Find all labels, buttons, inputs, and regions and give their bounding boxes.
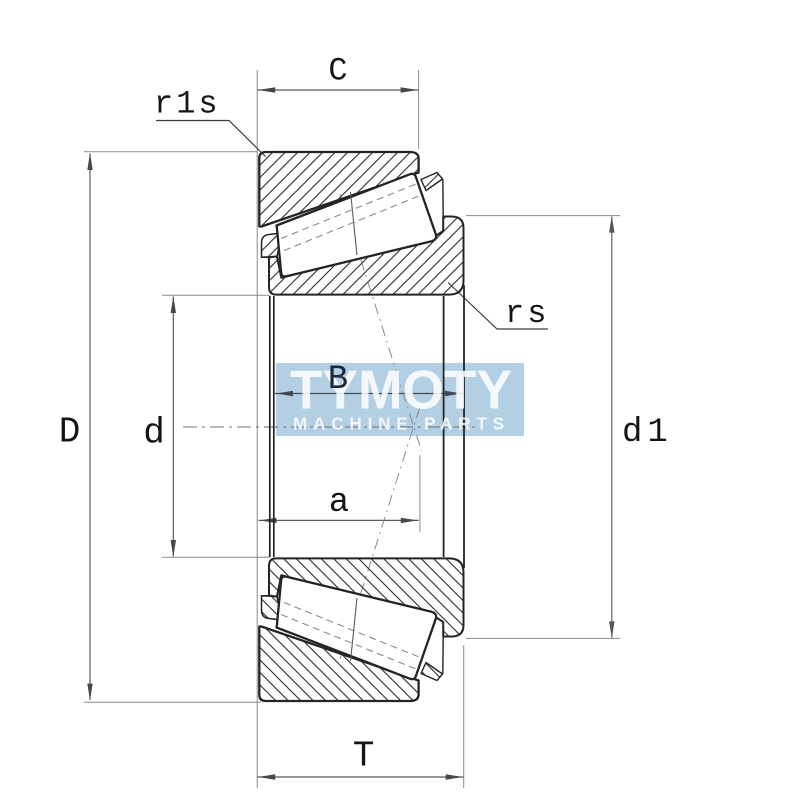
- svg-text:T: T: [353, 736, 375, 777]
- svg-text:C: C: [328, 53, 347, 90]
- svg-text:a: a: [329, 484, 349, 522]
- svg-text:MACHINE PARTS: MACHINE PARTS: [293, 414, 510, 434]
- svg-text:d: d: [143, 413, 165, 454]
- svg-text:TYMOTY: TYMOTY: [290, 359, 512, 421]
- svg-text:d1: d1: [622, 414, 673, 452]
- svg-text:r1s: r1s: [154, 86, 221, 123]
- svg-text:rs: rs: [505, 295, 549, 332]
- svg-text:B: B: [328, 361, 348, 399]
- svg-text:D: D: [59, 412, 81, 453]
